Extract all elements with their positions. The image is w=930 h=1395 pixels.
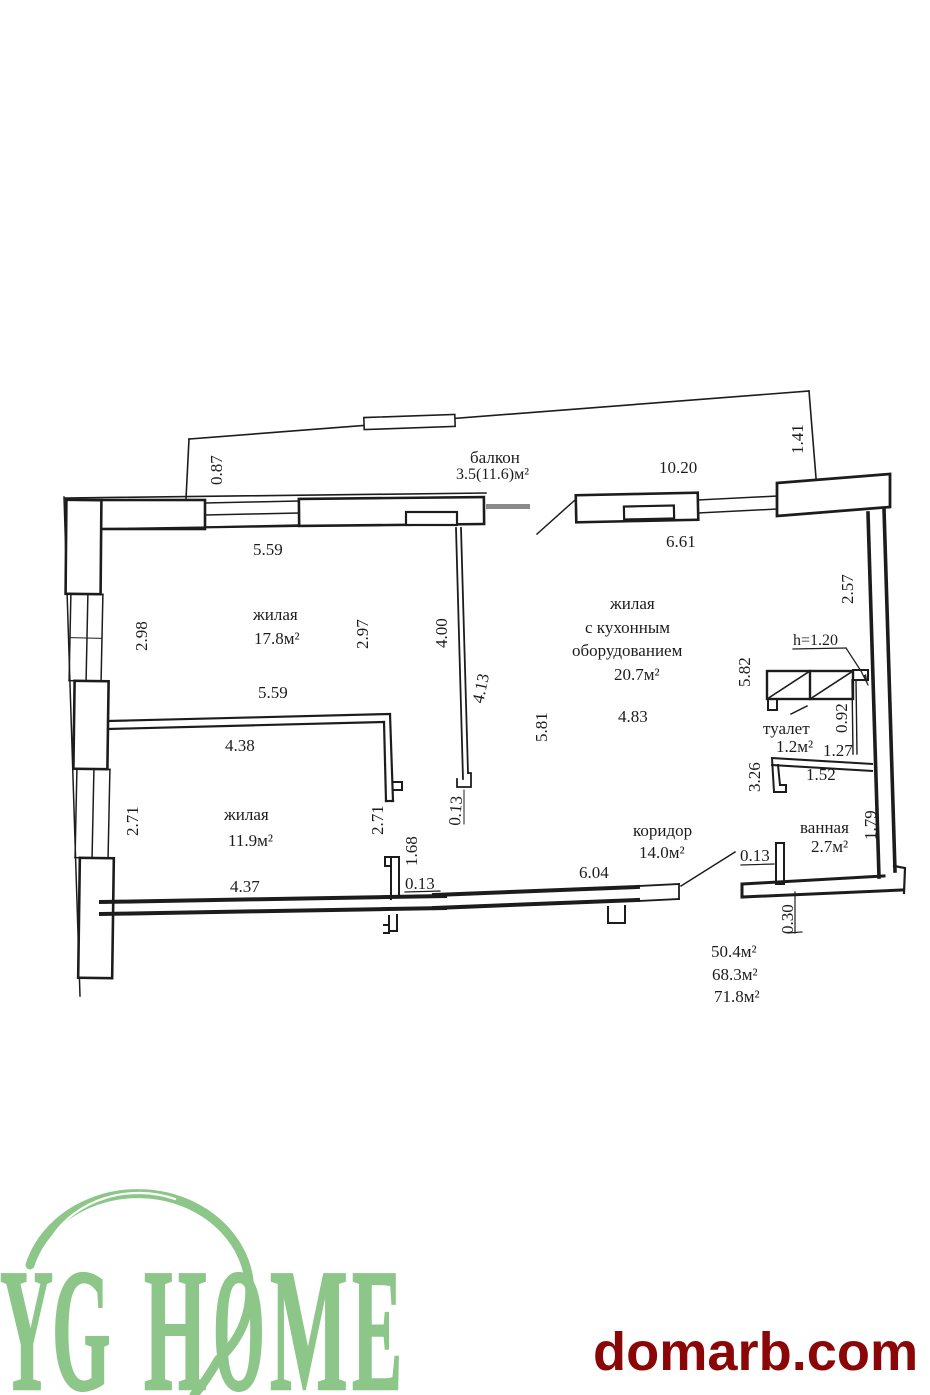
- svg-text:0.13: 0.13: [445, 795, 466, 826]
- svg-text:коридор: коридор: [633, 821, 692, 840]
- svg-text:E: E: [352, 1234, 402, 1395]
- svg-text:жилая: жилая: [252, 605, 298, 624]
- svg-text:68.3м²: 68.3м²: [712, 965, 758, 984]
- svg-text:11.9м²: 11.9м²: [228, 831, 273, 850]
- svg-text:жилая: жилая: [609, 594, 655, 613]
- svg-text:2.71: 2.71: [123, 806, 142, 836]
- svg-text:domarb.com: domarb.com: [593, 1322, 918, 1382]
- svg-text:0.92: 0.92: [832, 703, 851, 733]
- svg-text:1.2м²: 1.2м²: [776, 737, 813, 756]
- svg-text:10.20: 10.20: [659, 458, 697, 477]
- svg-text:6.04: 6.04: [579, 863, 609, 882]
- svg-text:1.79: 1.79: [861, 810, 880, 840]
- svg-text:1.68: 1.68: [402, 836, 421, 866]
- svg-text:2.98: 2.98: [132, 621, 151, 651]
- svg-text:балкон: балкон: [470, 448, 520, 467]
- svg-text:H: H: [144, 1235, 207, 1395]
- svg-text:4.37: 4.37: [230, 877, 260, 896]
- svg-text:h=1.20: h=1.20: [793, 632, 838, 649]
- svg-text:5.59: 5.59: [258, 683, 288, 702]
- svg-text:O: O: [213, 1233, 265, 1395]
- svg-text:4.83: 4.83: [618, 707, 648, 726]
- svg-text:20.7м²: 20.7м²: [614, 665, 660, 684]
- svg-text:4.38: 4.38: [225, 736, 255, 755]
- svg-text:14.0м²: 14.0м²: [639, 843, 685, 862]
- svg-text:M: M: [270, 1233, 348, 1395]
- svg-text:G: G: [52, 1234, 111, 1395]
- svg-text:50.4м²: 50.4м²: [711, 942, 757, 961]
- svg-text:1.41: 1.41: [788, 424, 807, 454]
- svg-text:0.13: 0.13: [740, 846, 770, 865]
- svg-text:1.52: 1.52: [806, 765, 836, 784]
- svg-text:жилая: жилая: [223, 805, 269, 824]
- svg-text:5.81: 5.81: [532, 712, 551, 742]
- svg-text:Y: Y: [0, 1234, 53, 1395]
- svg-text:2.71: 2.71: [368, 805, 387, 835]
- svg-text:3.26: 3.26: [745, 762, 764, 792]
- svg-text:2.57: 2.57: [838, 574, 857, 604]
- svg-text:5.82: 5.82: [735, 657, 754, 687]
- svg-text:с кухонным: с кухонным: [585, 618, 670, 637]
- svg-text:2.97: 2.97: [353, 619, 372, 649]
- svg-text:0.13: 0.13: [405, 874, 435, 893]
- svg-text:4.00: 4.00: [432, 618, 451, 648]
- svg-text:17.8м²: 17.8м²: [254, 629, 300, 648]
- svg-text:1.27: 1.27: [823, 741, 853, 760]
- svg-text:3.5(11.6)м²: 3.5(11.6)м²: [456, 466, 529, 483]
- svg-text:оборудованием: оборудованием: [572, 641, 683, 660]
- svg-text:ванная: ванная: [800, 818, 849, 837]
- svg-text:туалет: туалет: [763, 719, 810, 738]
- svg-text:0.87: 0.87: [207, 455, 226, 485]
- svg-text:2.7м²: 2.7м²: [811, 837, 848, 856]
- svg-text:5.59: 5.59: [253, 540, 283, 559]
- svg-text:71.8м²: 71.8м²: [714, 987, 760, 1006]
- svg-text:6.61: 6.61: [666, 532, 696, 551]
- svg-text:0.30: 0.30: [778, 904, 797, 934]
